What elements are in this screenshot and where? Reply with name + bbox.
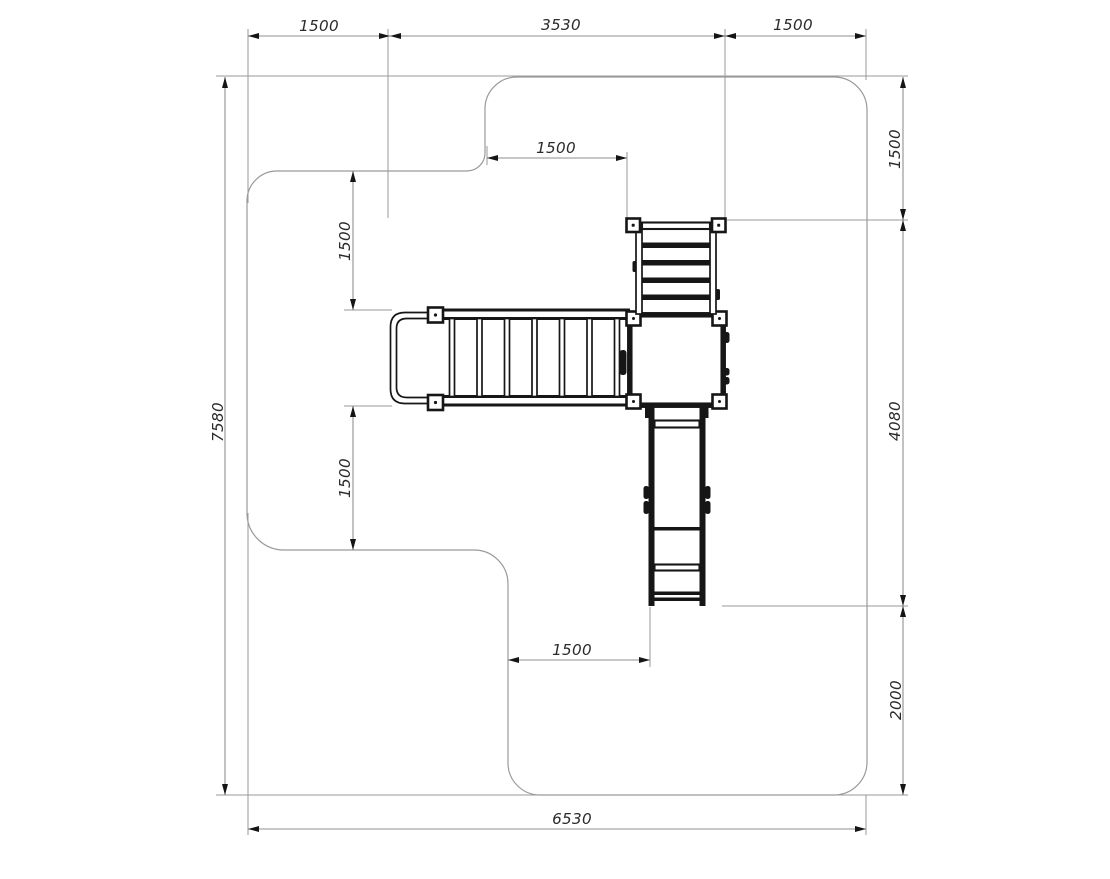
slide-crossbar: [655, 565, 700, 571]
slide-entry-flare: [704, 407, 709, 418]
plan-drawing: 1500 3530 1500 1500 4080 2000 7580 6530 …: [0, 0, 1110, 879]
platform-left-bracket: [620, 350, 627, 375]
dim-inner-lower: 1500: [336, 458, 354, 498]
dim-top-right: 1500: [773, 16, 813, 34]
slide-side-support: [705, 486, 711, 499]
dim-top-left: 1500: [299, 17, 339, 35]
platform-deck: [630, 315, 723, 405]
bridge-rung: [505, 319, 510, 397]
ladder-rung: [642, 243, 710, 249]
slide-crossbar: [655, 527, 700, 531]
ladder-rung: [642, 278, 710, 284]
bridge-rung: [477, 319, 482, 397]
ladder-rung: [642, 260, 710, 266]
bridge-rung: [615, 319, 620, 397]
ladder-rung: [642, 295, 710, 301]
slide-entry-flare: [645, 407, 650, 418]
bridge-handrail-loop-inner: [397, 319, 437, 398]
ladder-rail-joint: [633, 261, 637, 272]
platform-post-bolt: [632, 317, 635, 320]
ladder: [627, 219, 726, 315]
slide-side-support: [644, 501, 650, 514]
dim-inner-ladder: 1500: [536, 139, 576, 157]
dim-right-top: 1500: [886, 129, 904, 169]
bridge-rung: [560, 319, 565, 397]
bridge-post-top-bolt: [434, 313, 437, 316]
ladder-post-right-bolt: [717, 224, 720, 227]
ladder-left-rail: [636, 230, 642, 314]
slide: [644, 406, 711, 606]
bridge-bottom-rail: [437, 397, 629, 406]
bridge-rung: [450, 319, 455, 397]
ladder-right-rail: [710, 230, 716, 314]
dim-top-middle: 3530: [541, 16, 581, 34]
platform-right-grip: [724, 377, 730, 385]
platform-post-bolt: [632, 400, 635, 403]
dim-inner-upper: 1500: [336, 221, 354, 261]
drawing-canvas: 1500 3530 1500 1500 4080 2000 7580 6530 …: [0, 0, 1110, 879]
platform: [620, 312, 730, 409]
bridge-top-rail: [437, 310, 629, 319]
platform-right-grip: [724, 332, 730, 343]
dimension-labels: 1500 3530 1500 1500 4080 2000 7580 6530 …: [209, 16, 905, 828]
slide-right-rail: [700, 406, 706, 606]
ladder-rail-joint: [716, 289, 720, 300]
bridge-rung: [587, 319, 592, 397]
platform-post-bolt: [718, 317, 721, 320]
dim-inner-slide: 1500: [552, 641, 592, 659]
dim-bottom-overall: 6530: [552, 810, 592, 828]
slide-end-bar: [649, 592, 706, 596]
ladder-post-left-bolt: [632, 224, 635, 227]
dim-left-overall: 7580: [209, 402, 227, 442]
bridge-post-bottom-bolt: [434, 401, 437, 404]
slide-left-rail: [649, 406, 655, 606]
slide-entry-bar: [655, 421, 700, 428]
bridge-rung: [532, 319, 537, 397]
dim-right-bottom: 2000: [887, 680, 905, 720]
dim-right-middle: 4080: [886, 401, 904, 441]
platform-right-grip: [724, 368, 730, 376]
bridge: [391, 308, 629, 411]
slide-side-support: [644, 486, 650, 499]
slide-side-support: [705, 501, 711, 514]
platform-post-bolt: [718, 400, 721, 403]
ladder-top-bar: [642, 223, 710, 230]
play-area-outline: [247, 77, 867, 795]
slide-end-bar: [649, 598, 706, 602]
